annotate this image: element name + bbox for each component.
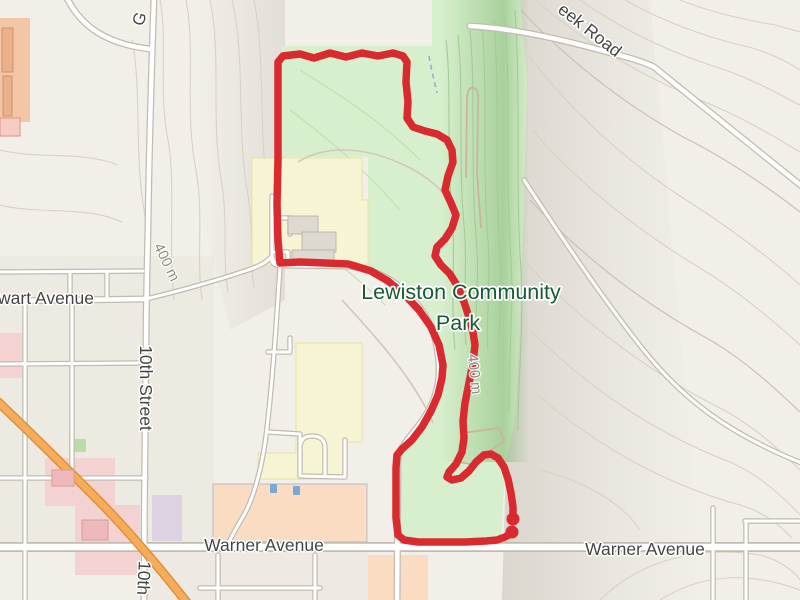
- commercial-block: [152, 495, 182, 541]
- poi-icon: [293, 486, 300, 495]
- park-name-line2: Park: [436, 311, 480, 335]
- park-name-line1: Lewiston Community: [361, 280, 561, 304]
- warner-avenue-label-east: Warner Avenue: [585, 539, 705, 559]
- warner-avenue-label-west: Warner Avenue: [204, 535, 324, 555]
- tenth-street-label: 10th Street: [136, 345, 156, 431]
- building-outline-nw: [0, 118, 20, 136]
- tenth-street-label-south: 10th: [133, 561, 155, 596]
- nw-buildings: [2, 28, 13, 116]
- poi-icon: [270, 484, 277, 493]
- route-endpoint-dot: [506, 526, 519, 539]
- map-svg: Lewiston Community Park Warner Avenue Wa…: [0, 0, 800, 600]
- map-canvas[interactable]: Lewiston Community Park Warner Avenue Wa…: [0, 0, 800, 600]
- route-endpoint-dot: [507, 513, 520, 526]
- stewart-avenue-label: wart Avenue: [0, 288, 94, 308]
- pink-block-west: [0, 333, 22, 378]
